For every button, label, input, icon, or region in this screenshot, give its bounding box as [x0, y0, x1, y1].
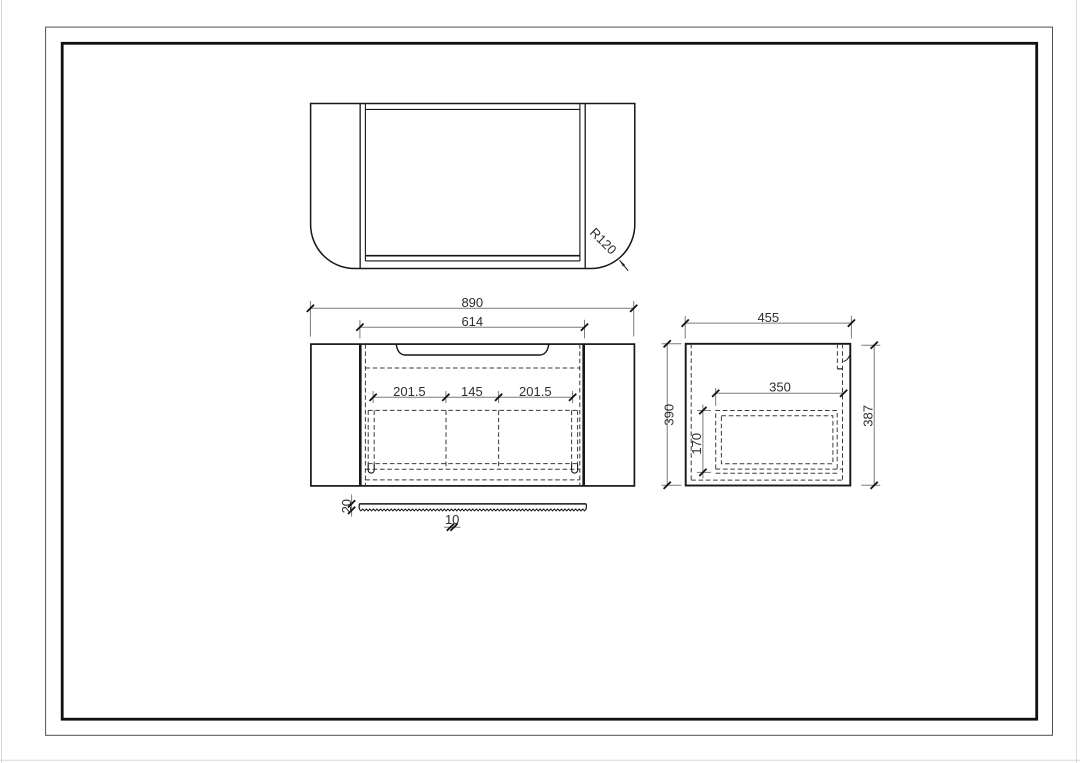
svg-text:350: 350: [769, 379, 791, 394]
svg-text:390: 390: [662, 404, 677, 426]
svg-text:890: 890: [461, 295, 483, 310]
svg-text:455: 455: [757, 310, 779, 325]
svg-text:145: 145: [461, 384, 483, 399]
svg-text:201.5: 201.5: [393, 384, 426, 399]
svg-text:20: 20: [339, 499, 354, 513]
svg-text:387: 387: [861, 405, 876, 427]
svg-text:170: 170: [689, 433, 704, 455]
svg-text:201.5: 201.5: [519, 384, 552, 399]
svg-text:614: 614: [461, 314, 483, 329]
